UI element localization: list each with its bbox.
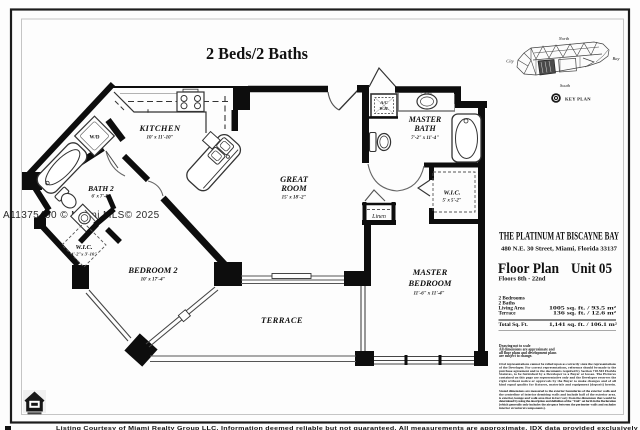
svg-text:Total Sq. Ft.: Total Sq. Ft. (499, 322, 529, 328)
svg-text:North: North (558, 36, 570, 41)
svg-text:BATH: BATH (413, 124, 436, 133)
svg-text:480 N.E. 30 Street, Miami, Flo: 480 N.E. 30 Street, Miami, Florida 33137 (501, 246, 618, 253)
svg-text:7'-2" x 11'-4": 7'-2" x 11'-4" (411, 136, 439, 141)
svg-text:A/C: A/C (379, 100, 388, 105)
svg-text:15' x 18'-2": 15' x 18'-2" (282, 196, 307, 201)
svg-text:City: City (506, 59, 514, 64)
svg-text:11'-6" x 11'-4": 11'-6" x 11'-4" (413, 292, 444, 297)
svg-text:interior structural components: interior structural components). (499, 406, 546, 410)
svg-text:1,141 sq. ft. / 106.1 m²: 1,141 sq. ft. / 106.1 m² (549, 322, 617, 328)
svg-text:TERRACE: TERRACE (261, 315, 303, 325)
svg-text:BATH 2: BATH 2 (87, 184, 114, 193)
svg-text:ROOM: ROOM (280, 183, 307, 193)
svg-text:THE PLATINUM AT BISCAYNE BAY: THE PLATINUM AT BISCAYNE BAY (499, 231, 619, 243)
svg-text:MASTER: MASTER (408, 115, 442, 124)
svg-text:W.H.: W.H. (379, 106, 389, 111)
svg-text:10' x 17'-4": 10' x 17'-4" (141, 278, 166, 283)
svg-text:10' x 11'-10": 10' x 11'-10" (147, 136, 174, 141)
svg-text:W/D: W/D (90, 136, 100, 141)
svg-text:MASTER: MASTER (412, 267, 448, 277)
svg-text:2 Beds/2 Baths: 2 Beds/2 Baths (206, 44, 309, 63)
svg-text:Unit 05: Unit 05 (571, 261, 612, 277)
svg-text:Bay: Bay (613, 56, 620, 61)
svg-text:South: South (560, 83, 571, 88)
svg-text:Listing Courtesy of Miami Real: Listing Courtesy of Miami Realty Group L… (56, 426, 638, 430)
svg-text:kind equal quality for fixture: kind equal quality for fixtures, materia… (499, 382, 616, 386)
svg-text:KEY PLAN: KEY PLAN (565, 97, 591, 102)
svg-text:5' x 5'-2": 5' x 5'-2" (443, 199, 462, 204)
svg-text:5'-3 1/2": 5'-3 1/2" (420, 91, 434, 95)
svg-text:are subject to change.: are subject to change. (499, 354, 532, 358)
svg-text:Linen: Linen (371, 214, 386, 220)
svg-text:BEDROOM: BEDROOM (408, 278, 452, 288)
svg-text:6' x 7'-8": 6' x 7'-8" (92, 195, 111, 200)
svg-text:Terrace: Terrace (499, 311, 517, 317)
svg-text:W.I.C.: W.I.C. (443, 190, 460, 197)
svg-text:W.I.C.: W.I.C. (75, 244, 92, 251)
svg-text:136 sq. ft. / 12.6 m²: 136 sq. ft. / 12.6 m² (553, 311, 617, 317)
svg-text:KITCHEN: KITCHEN (138, 123, 181, 133)
svg-text:Floors 8th - 22nd: Floors 8th - 22nd (499, 276, 546, 283)
svg-text:BEDROOM 2: BEDROOM 2 (127, 265, 178, 275)
svg-text:4'-2"x 3'-10": 4'-2"x 3'-10" (70, 252, 97, 257)
